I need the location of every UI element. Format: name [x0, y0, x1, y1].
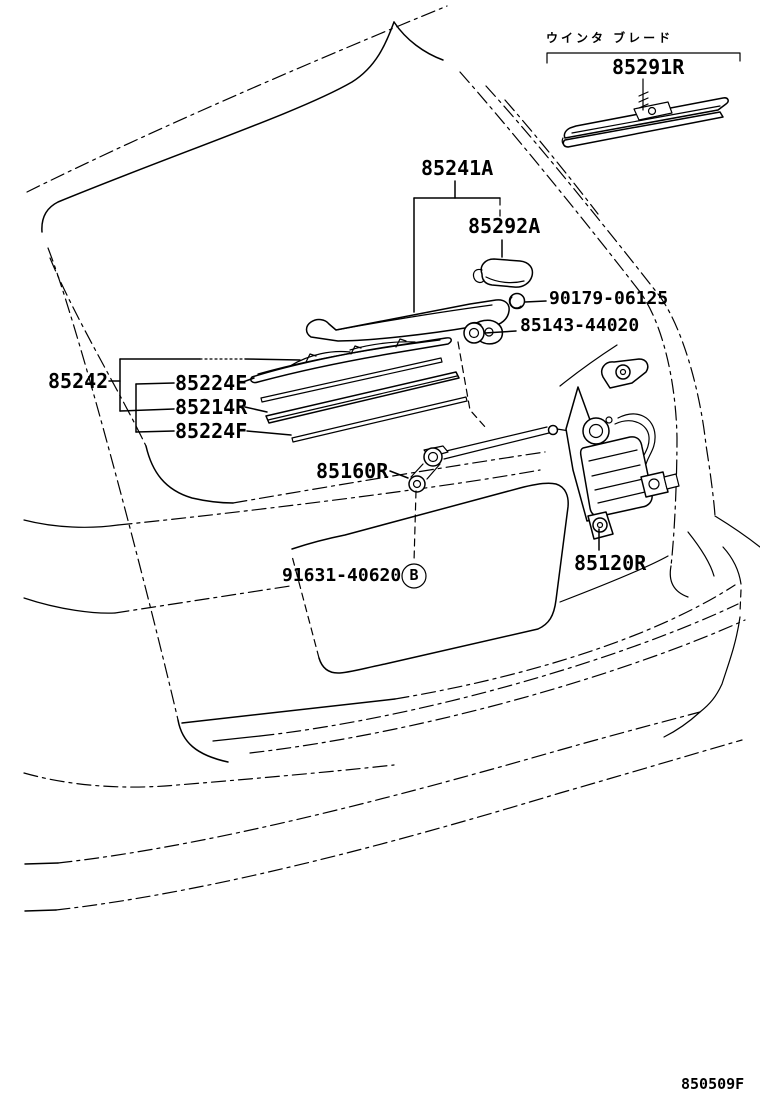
rear-wiper-parts-diagram: ウインタ ブレード 85291R 85241A 85292A 90179-061… [0, 0, 760, 1112]
winter-blade-note: ウインタ ブレード [546, 32, 673, 44]
part-label-blade-assy: 85242 [48, 371, 108, 391]
part-label-blade-rubber-e: 85224E [175, 373, 247, 393]
part-label-motor: 85120R [574, 553, 646, 573]
grommet-marker-b: B [409, 568, 418, 583]
part-label-arm-cover: 85292A [468, 216, 540, 236]
part-label-pivot-cap-nut: 85143-44020 [520, 317, 639, 335]
arm-nut-drawing [510, 294, 525, 309]
part-label-arm-assy: 85241A [421, 158, 493, 178]
drawing-code: 850509F [681, 1077, 744, 1092]
part-label-blade-r: 85214R [175, 397, 247, 417]
car-body-outline [24, 6, 760, 911]
arm-head-cover-drawing [473, 259, 532, 287]
part-label-winter-blade: 85291R [612, 57, 684, 77]
part-label-blade-rubber-f: 85224F [175, 421, 247, 441]
part-label-grommet: 91631-40620 [282, 567, 401, 585]
pivot-drawing [409, 426, 582, 493]
motor-drawing [566, 359, 679, 539]
pivot-cap-nut-drawing [464, 322, 484, 343]
part-label-pivot: 85160R [316, 461, 388, 481]
part-label-arm-nut: 90179-06125 [549, 290, 668, 308]
blade-rubber-e-drawing [261, 358, 442, 402]
